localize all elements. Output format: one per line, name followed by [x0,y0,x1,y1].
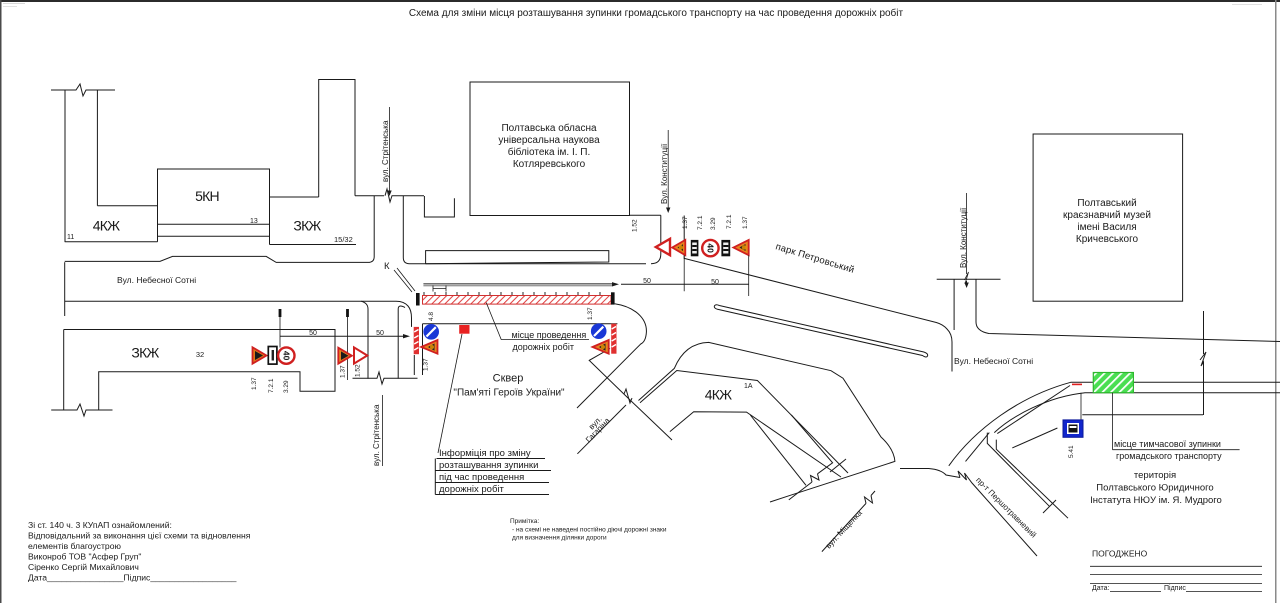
svg-text:розташування зупинки: розташування зупинки [439,460,538,471]
svg-text:4.8: 4.8 [428,312,435,321]
svg-text:13: 13 [250,218,258,225]
svg-text:1.52: 1.52 [355,364,362,377]
svg-text:дорожніх робіт: дорожніх робіт [513,342,574,352]
svg-text:Підпис: Підпис [1164,584,1186,592]
svg-text:К: К [384,261,390,272]
svg-text:40: 40 [281,351,291,361]
svg-text:1.37: 1.37 [423,358,430,371]
svg-text:для визначення ділянки дороги: для визначення ділянки дороги [512,534,607,542]
svg-text:Примітка:: Примітка: [510,517,539,525]
svg-text:Полтавського Юридичного: Полтавського Юридичного [1096,483,1213,494]
svg-text:3.29: 3.29 [283,380,290,393]
svg-text:Полтавська обласна: Полтавська обласна [501,122,596,134]
svg-text:Вул. Небесної Сотні: Вул. Небесної Сотні [954,356,1033,366]
svg-text:1.37: 1.37 [340,365,347,378]
svg-text:Відповідальний за виконання ці: Відповідальний за виконання цієї схеми т… [28,531,251,541]
svg-text:Кричевського: Кричевського [1076,234,1139,245]
svg-text:ЗКЖ: ЗКЖ [293,218,321,234]
svg-text:Виконроб ТОВ "Асфер Груп": Виконроб ТОВ "Асфер Груп" [28,552,141,562]
svg-text:5.41: 5.41 [1068,445,1075,458]
svg-text:50: 50 [643,278,651,285]
svg-text:Інстатута НЮУ ім. Я. Мудрого: Інстатута НЮУ ім. Я. Мудрого [1090,495,1222,506]
svg-text:універсальна наукова: універсальна наукова [498,135,600,146]
svg-text:Зі ст. 140 ч. 3 КУпАП ознайомл: Зі ст. 140 ч. 3 КУпАП ознайомлений: [28,520,172,530]
svg-text:7.2.1: 7.2.1 [697,215,704,230]
svg-text:1.52: 1.52 [632,219,639,232]
svg-text:1.37: 1.37 [682,216,689,229]
svg-text:Полтавський: Полтавський [1077,198,1136,209]
svg-text:1.37: 1.37 [742,216,749,229]
svg-text:Вул. Небесної Сотні: Вул. Небесної Сотні [117,275,196,285]
svg-text:під час проведення: під час проведення [439,472,524,483]
svg-text:ПОГОДЖЕНО: ПОГОДЖЕНО [1092,549,1148,559]
svg-text:- на схемі не наведені постійн: - на схемі не наведені постійно діючі до… [512,526,667,534]
svg-text:3.29: 3.29 [710,217,717,230]
svg-text:Інформіція про зміну: Інформіція про зміну [439,448,531,459]
svg-text:Котляревського: Котляревського [513,159,586,170]
svg-text:50: 50 [309,330,317,337]
svg-text:місце тимчасової зупинки: місце тимчасової зупинки [1114,439,1221,449]
svg-text:дорожніх робіт: дорожніх робіт [439,484,505,495]
svg-text:територія: територія [1134,470,1176,481]
svg-text:5КН: 5КН [195,188,219,204]
svg-text:Дата:: Дата: [1092,585,1110,592]
svg-text:4КЖ: 4КЖ [705,387,732,403]
svg-text:місце проведення: місце проведення [512,330,587,340]
svg-text:50: 50 [376,330,384,337]
svg-text:вул. Стрітенська: вул. Стрітенська [372,404,381,466]
svg-text:імені Василя: імені Василя [1077,222,1136,233]
svg-text:1А: 1А [744,383,753,390]
svg-text:11: 11 [67,234,74,241]
svg-text:Сіренко Сергій Михайлович: Сіренко Сергій Михайлович [28,562,139,572]
svg-text:Схема для зміни місця розташув: Схема для зміни місця розташування зупин… [409,7,904,19]
svg-text:громадського транспорту: громадського транспорту [1116,451,1222,461]
svg-text:1.37: 1.37 [251,377,258,390]
svg-text:елементів благоустрою: елементів благоустрою [28,541,121,551]
svg-text:ЗКЖ: ЗКЖ [131,345,159,361]
svg-text:40: 40 [705,243,715,253]
svg-text:Сквер: Сквер [493,373,524,385]
svg-text:вул. Стрітенська: вул. Стрітенська [381,120,390,182]
svg-text:32: 32 [196,350,204,359]
svg-text:4КЖ: 4КЖ [93,218,120,234]
svg-text:бібліотека ім. І. П.: бібліотека ім. І. П. [508,146,591,158]
svg-text:7.2.1: 7.2.1 [268,378,275,393]
svg-text:Вул. Конституції: Вул. Конституції [660,143,669,204]
svg-text:Дата________________Підпис____: Дата________________Підпис______________… [28,573,237,583]
svg-text:1.37: 1.37 [587,307,594,320]
svg-text:краєзнавчий музей: краєзнавчий музей [1063,210,1151,221]
svg-text:50: 50 [711,279,719,286]
svg-text:"Пам'яті Героїв України": "Пам'яті Героїв України" [453,388,565,399]
svg-text:15/32: 15/32 [334,235,353,244]
svg-text:7.2.1: 7.2.1 [726,214,733,229]
